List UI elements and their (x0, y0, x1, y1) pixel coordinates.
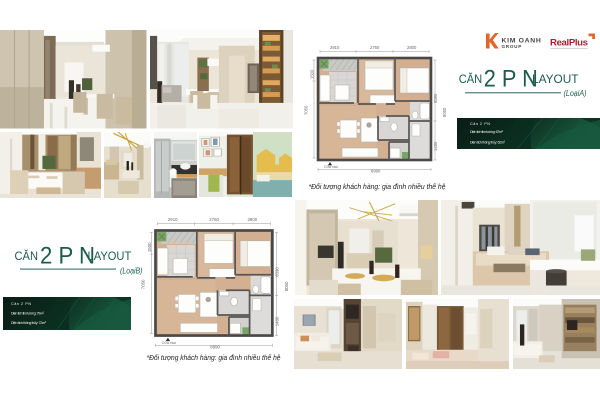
svg-text:Diện tích tim tường: 79m²: Diện tích tim tường: 79m² (11, 312, 45, 316)
svg-text:2800: 2800 (248, 217, 258, 222)
svg-text:7050: 7050 (304, 105, 309, 115)
svg-text:1500: 1500 (147, 242, 152, 252)
svg-text:Cửa vào: Cửa vào (162, 341, 176, 345)
svg-text:*Đối tượng khách hàng: gia đìn: *Đối tượng khách hàng: gia đình nhiều th… (147, 353, 281, 362)
svg-text:2910: 2910 (330, 45, 340, 50)
svg-text:Diện tích thông thủy: 72m²: Diện tích thông thủy: 72m² (11, 321, 47, 325)
svg-text:Diện tích thông thủy: 62m²: Diện tích thông thủy: 62m² (470, 140, 506, 144)
svg-text:GROUP: GROUP (502, 44, 523, 49)
svg-text:2910: 2910 (168, 217, 178, 222)
svg-text:8050: 8050 (284, 281, 289, 291)
svg-text:Căn 2 PN: Căn 2 PN (470, 122, 490, 126)
svg-text:2800: 2800 (407, 45, 417, 50)
svg-text:CĂN: CĂN (15, 250, 39, 263)
svg-text:Căn 2 PN: Căn 2 PN (11, 302, 31, 306)
svg-text:6390: 6390 (433, 93, 438, 103)
svg-text:CĂN: CĂN (459, 73, 483, 86)
svg-text:1480: 1480 (275, 316, 280, 326)
svg-text:(LoạiB): (LoạiB) (120, 267, 143, 276)
svg-text:RealPlus: RealPlus (550, 38, 588, 49)
svg-text:Cửa vào: Cửa vào (324, 165, 338, 169)
svg-text:Diện tích tim tường: 67m²: Diện tích tim tường: 67m² (470, 130, 504, 134)
svg-text:7050: 7050 (141, 279, 146, 289)
svg-text:*Đối tượng khách hàng: gia đìn: *Đối tượng khách hàng: gia đình nhiều th… (309, 182, 446, 191)
svg-text:2760: 2760 (209, 217, 219, 222)
svg-text:2 P N: 2 P N (484, 65, 538, 92)
svg-text:LAYOUT: LAYOUT (532, 72, 579, 86)
svg-text:1480: 1480 (433, 141, 438, 151)
svg-text:2760: 2760 (370, 45, 380, 50)
svg-text:(LoạiA): (LoạiA) (564, 89, 587, 98)
svg-text:6390: 6390 (275, 267, 280, 277)
svg-text:2 P N: 2 P N (40, 243, 95, 270)
svg-text:8050: 8050 (442, 107, 447, 117)
